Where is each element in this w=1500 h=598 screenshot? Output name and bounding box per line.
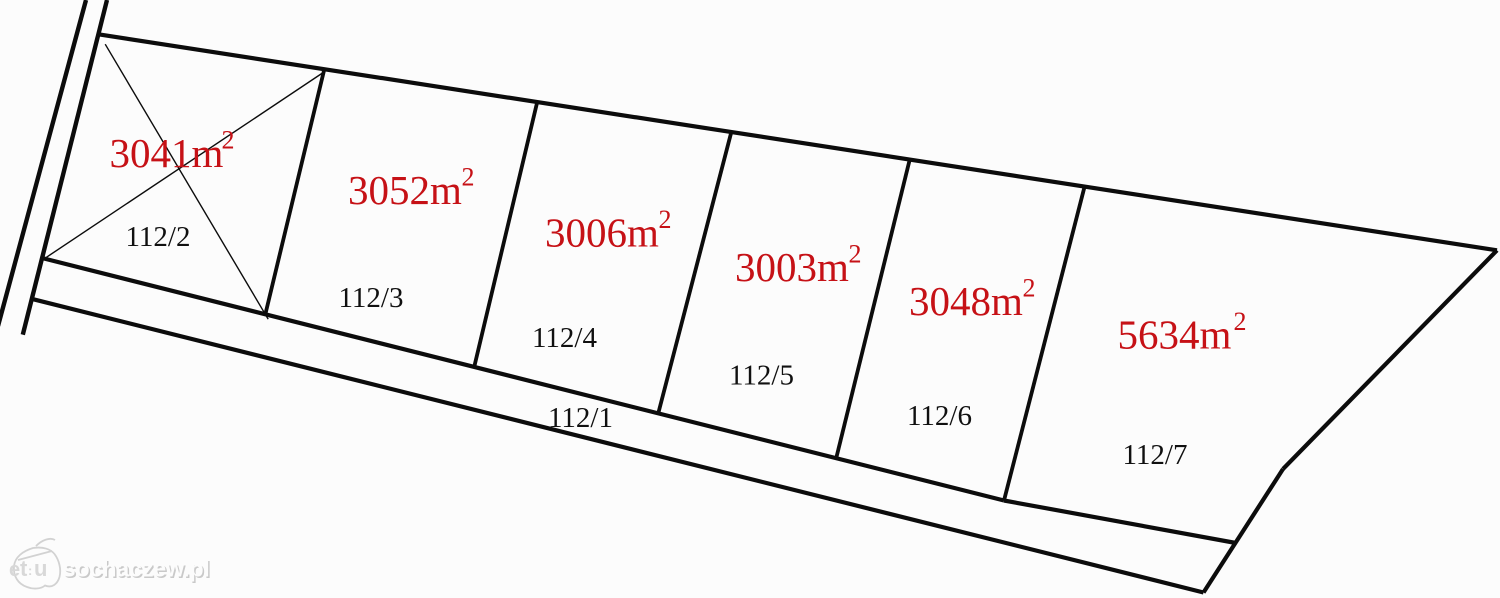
svg-text:2: 2 bbox=[222, 126, 235, 155]
svg-text:u: u bbox=[34, 556, 47, 581]
svg-text:2: 2 bbox=[462, 163, 475, 192]
svg-text:112/5: 112/5 bbox=[729, 360, 794, 392]
svg-text:112/1: 112/1 bbox=[548, 402, 613, 434]
svg-text:3052m: 3052m bbox=[348, 167, 462, 213]
svg-text:3006m: 3006m bbox=[545, 210, 659, 256]
svg-text:112/3: 112/3 bbox=[339, 282, 404, 314]
svg-text::: : bbox=[28, 563, 32, 578]
svg-text:112/4: 112/4 bbox=[532, 322, 597, 354]
svg-text:e: e bbox=[9, 559, 20, 581]
svg-text:3041m: 3041m bbox=[110, 130, 224, 176]
svg-text:3003m: 3003m bbox=[735, 244, 849, 290]
svg-text:2: 2 bbox=[659, 205, 672, 234]
svg-text:2: 2 bbox=[1023, 274, 1036, 303]
svg-text:112/2: 112/2 bbox=[126, 221, 191, 253]
svg-text:t: t bbox=[20, 556, 28, 581]
svg-text:112/6: 112/6 bbox=[907, 400, 972, 432]
svg-text:sochaczew.pl: sochaczew.pl bbox=[63, 556, 210, 582]
svg-text:112/7: 112/7 bbox=[1123, 439, 1188, 471]
svg-text:3048m: 3048m bbox=[909, 278, 1023, 324]
svg-text:2: 2 bbox=[1234, 307, 1247, 336]
svg-text:2: 2 bbox=[849, 240, 862, 269]
svg-text:5634m: 5634m bbox=[1118, 312, 1232, 358]
